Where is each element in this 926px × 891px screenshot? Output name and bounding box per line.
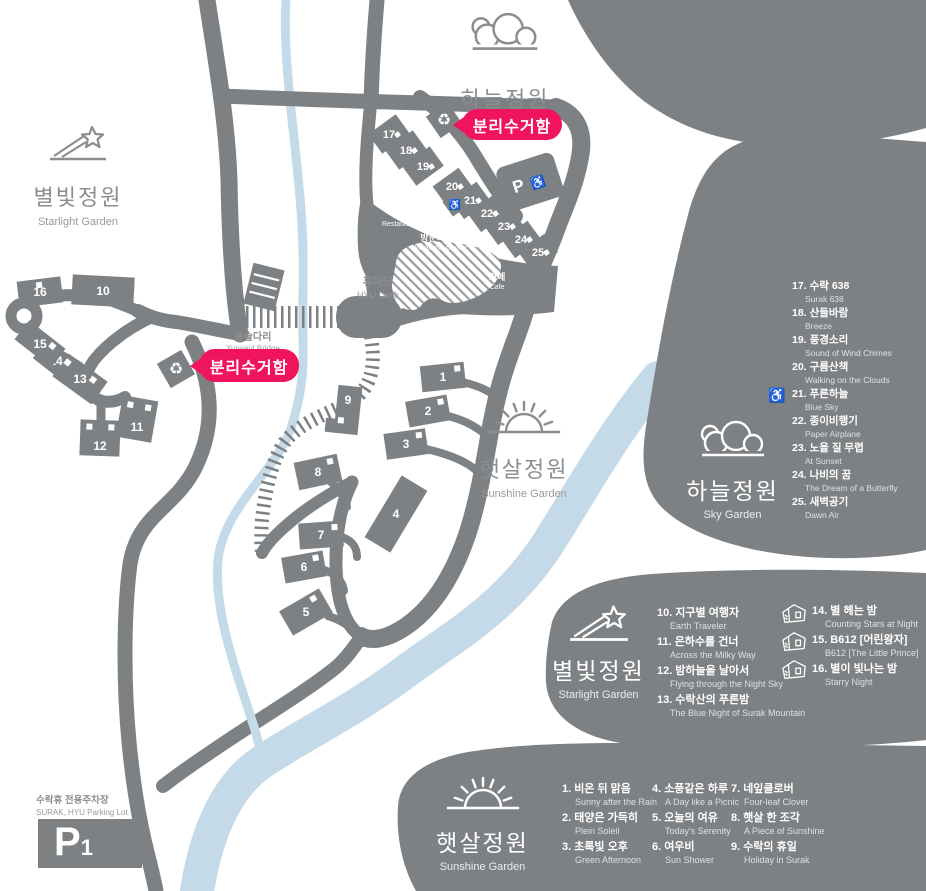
svg-text:7: 7 [318, 528, 325, 542]
site-11: 11 [116, 395, 159, 443]
sunshine-legend-list-3: 7.네잎클로버Four-leaf Clover 8.햇살 한 조각A Piece… [731, 782, 825, 869]
bridge-junction [336, 296, 402, 338]
svg-text:6: 6 [301, 560, 308, 574]
svg-text:3: 3 [403, 437, 410, 451]
legend-title-starlight: 별빛정원 Starlight Garden [526, 602, 671, 701]
parking-lot-label: 수락휴 전용주차장 SURAK, HYU Parking Lot [36, 792, 196, 817]
map-label-sky-garden: 하늘정원 [432, 10, 578, 114]
cabin-icon [779, 630, 809, 654]
legend-title-sky: 하늘정원 Sky Garden [660, 418, 805, 521]
sunshine-legend-list-1: 1.비온 뒤 맑음Sunny after the Rain 2.태양은 가득히P… [562, 782, 657, 869]
recycling-badge-top: 분리수거함 [462, 109, 562, 140]
starlight-legend-list-2: 14.별 헤는 밤Counting Stars at Night 15.B612… [812, 604, 919, 691]
legend-item: 14.별 헤는 밤Counting Stars at Night [812, 604, 919, 630]
starlight-legend-subtitle: Starlight Garden [526, 689, 671, 701]
map-label-starlight-garden: 별빛정원 Starlight Garden [4, 122, 152, 228]
site-1: 1 [420, 362, 466, 392]
site-3: 3 [383, 428, 428, 460]
hyu-deck-label: 휴마당 HYU Deck [333, 273, 423, 300]
recycling-badge-label: 분리수거함 [473, 113, 552, 137]
site-5: 5 [279, 588, 333, 635]
svg-text:5: 5 [303, 605, 310, 619]
svg-text:23: 23 [498, 221, 510, 233]
sun-icon [481, 396, 567, 440]
legend-item: 9.수락의 휴일Holiday in Surak [731, 840, 825, 866]
site-7: 7 [298, 520, 344, 549]
svg-text:25: 25 [532, 247, 544, 259]
svg-text:11: 11 [131, 420, 144, 434]
sunshine-legend-list-2: 4.소풍같은 하루A Day like a Picnic 5.오늘의 여유Tod… [652, 782, 739, 869]
legend-item: 18.산들바람Breeze [792, 307, 898, 331]
svg-text:16: 16 [33, 285, 47, 299]
welcome-center-label: 방문자센터 Welcome Center [391, 231, 491, 252]
site-4: 4 [365, 475, 428, 552]
cloud-icon [466, 10, 544, 58]
svg-text:15: 15 [33, 337, 47, 351]
starlight-garden-map-subtitle: Starlight Garden [4, 216, 152, 228]
legend-item: 17.수락 638Surak 638 [792, 280, 898, 304]
legend-item: 4.소풍같은 하루A Day like a Picnic [652, 782, 739, 808]
legend-item: 8.햇살 한 조각A Piece of Sunshine [731, 811, 825, 837]
sunshine-garden-map-subtitle: Sunshine Garden [448, 488, 600, 500]
svg-text:9: 9 [345, 393, 352, 407]
legend-item: 1.비온 뒤 맑음Sunny after the Rain [562, 782, 657, 808]
svg-text:18: 18 [400, 145, 412, 157]
svg-text:10: 10 [96, 284, 110, 298]
recycle-icon: ♻ [169, 361, 183, 378]
site-16: 16 [17, 276, 64, 307]
badge-tail [453, 117, 464, 133]
shooting-star-icon [566, 602, 632, 644]
svg-text:24: 24 [515, 234, 528, 246]
legend-item: 3.초록빛 오후Green Afternoon [562, 840, 657, 866]
sunshine-legend-subtitle: Sunshine Garden [410, 861, 555, 873]
legend-item: 23.노을 질 무렵At Sunset [792, 442, 898, 466]
cloud-icon [696, 418, 770, 464]
site-6: 6 [281, 551, 327, 584]
legend-item: 15.B612 [어린왕자]B612 [The Little Prince] [812, 633, 919, 659]
svg-text:8: 8 [315, 465, 322, 479]
legend-item: 22.종이비행기Paper Airplane [792, 415, 898, 439]
sun-icon [440, 772, 526, 816]
surak-hyu-map: 1 2 3 4 5 6 7 8 9 10 11 12 13 14 15 16 1… [0, 0, 926, 891]
svg-text:1: 1 [440, 370, 447, 384]
legend-item: 20.구름산책Walking on the Clouds [792, 361, 898, 385]
cabin-icons [779, 602, 809, 686]
p1-label: P1 [38, 819, 142, 868]
sky-legend-subtitle: Sky Garden [660, 509, 805, 521]
legend-item: 25.새벽공기Dawn Air [792, 496, 898, 520]
starlight-legend-title: 별빛정원 [526, 652, 671, 686]
legend-item: 5.오늘의 여유Today's Serenity [652, 811, 739, 837]
site-9: 9 [325, 384, 363, 435]
svg-text:♿: ♿ [449, 198, 461, 211]
recycling-badge-label: 분리수거함 [210, 354, 289, 378]
svg-text:12: 12 [93, 439, 107, 453]
legend-item: 24.나비의 꿈The Dream of a Butterfly [792, 469, 898, 493]
legend-item: 6.여우비Sun Shower [652, 840, 739, 866]
legend-item: 7.네잎클로버Four-leaf Clover [731, 782, 825, 808]
cafe-label: 카페 Cafe [467, 270, 527, 291]
legend-item: 21.푸른하늘Blue Sky [792, 388, 898, 412]
recycle-icon: ♻ [437, 112, 451, 129]
legend-item: 13.수락산의 푸른밤The Blue Night of Surak Mount… [657, 693, 805, 719]
svg-text:22: 22 [481, 208, 493, 220]
cabin-icon [779, 602, 809, 626]
site-2: 2 [405, 395, 451, 428]
cabin-icon [779, 658, 809, 682]
river-deck [243, 263, 284, 311]
restaurant-label: 식당 Restaurant [369, 207, 429, 228]
legend-item: 2.태양은 가득히Plein Soleil [562, 811, 657, 837]
forest-blob-top-right [568, 0, 926, 146]
legend-item: 16.별이 빛나는 밤Starry Night [812, 662, 919, 688]
svg-text:19: 19 [417, 161, 429, 173]
svg-text:4: 4 [393, 507, 400, 521]
svg-text:13: 13 [73, 372, 87, 386]
svg-text:2: 2 [425, 404, 432, 418]
sky-legend-list: 17.수락 638Surak 638 18.산들바람Breeze 19.풍경소리… [792, 280, 898, 523]
sunshine-legend-title: 햇살정원 [410, 824, 555, 858]
sunshine-garden-map-title: 햇살정원 [448, 452, 600, 484]
shooting-star-icon [46, 122, 110, 164]
site-12: 12 [79, 419, 120, 456]
badge-tail [190, 358, 201, 374]
svg-text:20: 20 [446, 181, 458, 193]
svg-text:17: 17 [383, 129, 395, 141]
starlight-garden-map-title: 별빛정원 [4, 180, 152, 212]
sky-legend-title: 하늘정원 [660, 472, 805, 506]
legend-title-sunshine: 햇살정원 Sunshine Garden [410, 772, 555, 873]
legend-item: 19.풍경소리Sound of Wind Chimes [792, 334, 898, 358]
sky-legend-wheelchair: ♿ [768, 387, 785, 404]
site-10: 10 [71, 274, 134, 307]
recycling-badge-left: 분리수거함 [199, 349, 299, 382]
map-label-sunshine-garden: 햇살정원 Sunshine Garden [448, 396, 600, 500]
